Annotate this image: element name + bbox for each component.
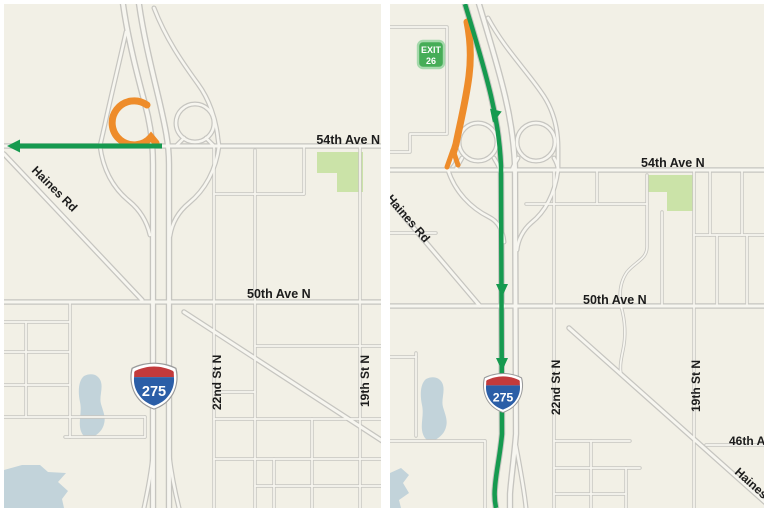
road-label-50th-ave-n: 50th Ave N [247,287,311,301]
exit-sign-number: 26 [426,56,436,66]
road-label-22nd-st-n: 22nd St N [549,360,563,415]
exit-26-sign: EXIT 26 [418,41,444,68]
pond [421,377,447,441]
road-label-46th-ave-n: 46th Ave N [729,434,764,448]
map-panel-left: 54th Ave N Haines Rd 50th Ave N 22nd St … [4,4,381,508]
road-label-22nd-st-n: 22nd St N [210,355,224,410]
shield-route-number: 275 [493,391,514,405]
road-label-54th-ave-n: 54th Ave N [641,156,705,170]
road-label-19th-st-n: 19th St N [358,355,372,407]
road-label-50th-ave-n: 50th Ave N [583,293,647,307]
map-panel-right: EXIT 26 54th Ave N Haines Rd 50th Ave N … [390,4,764,508]
shield-route-number: 275 [142,384,166,400]
road-label-19th-st-n: 19th St N [689,360,703,412]
pond [79,374,105,438]
road-label-54th-ave-n: 54th Ave N [316,133,380,147]
map-left-canvas: 54th Ave N Haines Rd 50th Ave N 22nd St … [4,4,381,508]
map-right-canvas: EXIT 26 54th Ave N Haines Rd 50th Ave N … [390,4,764,508]
exit-sign-word: EXIT [421,45,442,55]
